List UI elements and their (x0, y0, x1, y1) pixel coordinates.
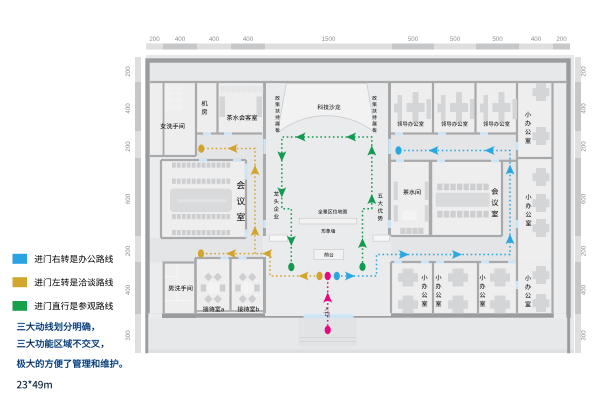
svg-text:200: 200 (125, 245, 132, 256)
svg-text:200: 200 (581, 141, 588, 152)
svg-text:200: 200 (125, 141, 132, 152)
svg-text:600: 600 (125, 193, 132, 204)
svg-text:200: 200 (149, 36, 160, 43)
svg-text:500: 500 (450, 36, 461, 43)
svg-text:400: 400 (125, 284, 132, 295)
svg-text:600: 600 (581, 193, 588, 204)
svg-text:1500: 1500 (322, 36, 336, 43)
svg-text:200: 200 (125, 66, 132, 77)
svg-text:500: 500 (408, 36, 419, 43)
svg-text:400: 400 (125, 103, 132, 114)
svg-text:400: 400 (175, 36, 186, 43)
svg-text:200: 200 (581, 66, 588, 77)
svg-text:400: 400 (581, 103, 588, 114)
svg-text:400: 400 (581, 284, 588, 295)
svg-text:300: 300 (125, 330, 132, 341)
svg-text:200: 200 (556, 36, 567, 43)
svg-text:400: 400 (531, 36, 542, 43)
svg-text:400: 400 (209, 36, 220, 43)
svg-text:300: 300 (581, 330, 588, 341)
svg-text:400: 400 (243, 36, 254, 43)
svg-text:200: 200 (581, 245, 588, 256)
svg-text:500: 500 (492, 36, 503, 43)
